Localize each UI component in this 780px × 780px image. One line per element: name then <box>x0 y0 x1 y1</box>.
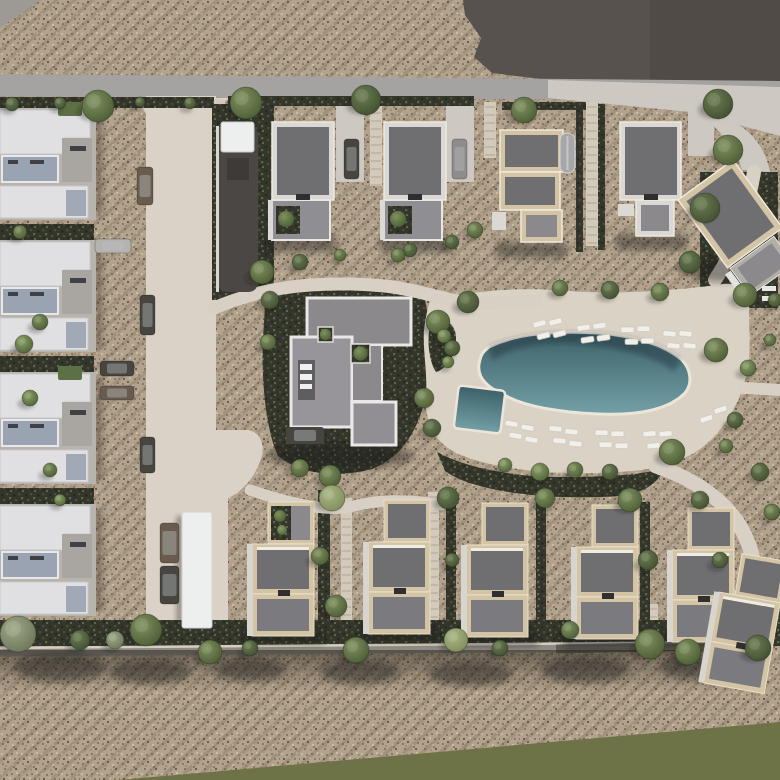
car <box>160 566 179 604</box>
car <box>160 523 179 563</box>
sun-lounger <box>625 339 638 345</box>
roof-terrace <box>2 420 58 446</box>
tree-shadow <box>428 662 512 686</box>
internal-road <box>146 96 216 434</box>
carport-canopy <box>182 512 212 628</box>
kiddie-pool <box>454 385 506 433</box>
footpath <box>744 388 780 390</box>
sun-lounger <box>643 430 656 437</box>
masterplan-scene <box>0 0 780 780</box>
car <box>140 437 155 473</box>
clubhouse-roof <box>352 402 396 445</box>
sun-lounger <box>595 430 608 436</box>
tree-shadow <box>14 654 106 682</box>
car <box>344 139 359 179</box>
hedge <box>576 104 583 252</box>
roof-planter <box>58 366 82 380</box>
sun-lounger <box>565 428 578 435</box>
roof-terrace <box>2 156 58 182</box>
steps-path <box>484 102 496 158</box>
tree-shadow <box>214 659 286 681</box>
apartment-block <box>0 504 103 616</box>
sun-lounger <box>667 342 681 349</box>
villa <box>380 122 446 240</box>
car <box>95 239 131 253</box>
sun-lounger <box>641 338 654 344</box>
sun-lounger <box>553 437 566 444</box>
steps-path <box>586 102 598 246</box>
building-shadow <box>496 242 566 258</box>
car <box>137 167 153 205</box>
car <box>100 361 134 376</box>
white-shed-roof <box>221 122 254 152</box>
parcel-shading <box>650 0 780 90</box>
villa <box>268 122 334 240</box>
sun-lounger <box>621 327 634 333</box>
tree-shadow <box>266 443 414 469</box>
car <box>100 386 134 400</box>
roof-terrace <box>2 288 58 314</box>
sun-lounger <box>615 443 628 449</box>
roof-terrace <box>2 552 58 578</box>
sun-lounger <box>599 442 612 448</box>
sun-lounger <box>647 442 660 449</box>
sun-lounger <box>659 430 672 437</box>
apartment-block <box>0 240 103 352</box>
site-aerial-render <box>0 0 780 780</box>
sun-lounger <box>679 330 693 337</box>
pergola-slats <box>762 286 776 291</box>
sun-lounger <box>611 431 624 437</box>
tree-shadow <box>320 660 400 684</box>
car <box>140 295 155 335</box>
tree-shadow <box>110 660 190 684</box>
tree-shadow <box>541 657 629 683</box>
sun-lounger <box>683 342 697 349</box>
car <box>452 139 467 179</box>
sun-lounger <box>663 330 677 337</box>
sun-lounger <box>569 440 582 447</box>
tree <box>0 616 36 652</box>
hedge <box>598 104 605 250</box>
sun-lounger <box>637 326 650 332</box>
sun-lounger <box>549 425 562 432</box>
